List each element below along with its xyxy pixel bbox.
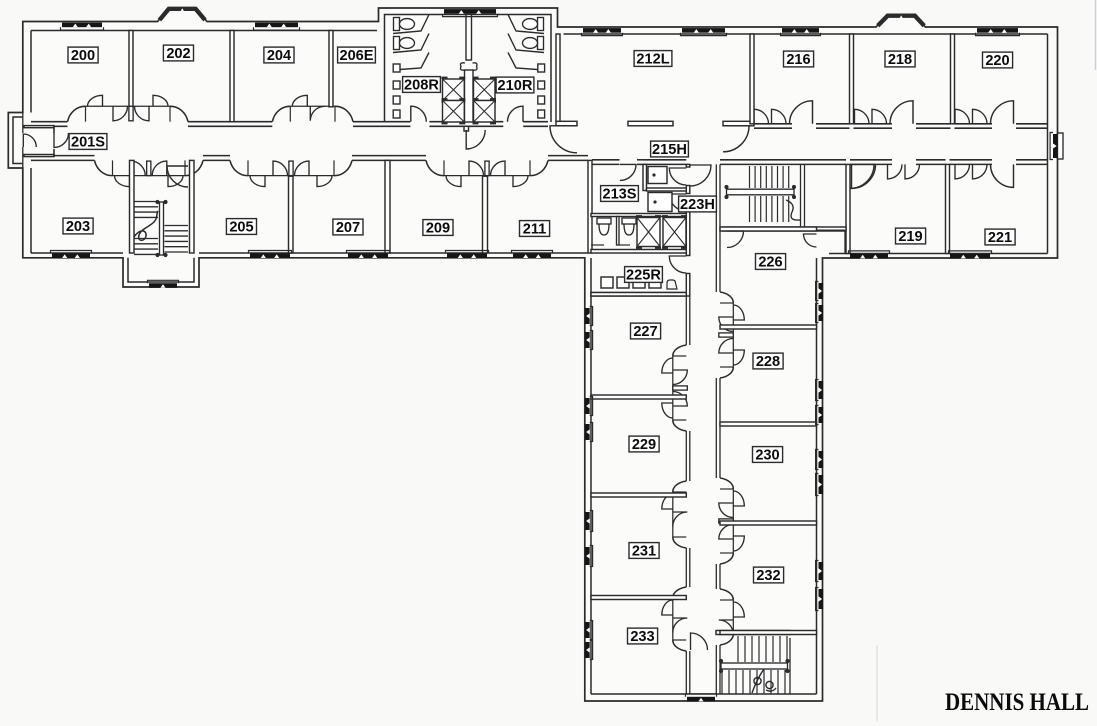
svg-text:206E: 206E [339, 48, 373, 64]
svg-text:210R: 210R [498, 78, 533, 94]
svg-text:225R: 225R [626, 268, 661, 284]
svg-text:213S: 213S [602, 187, 636, 203]
svg-text:230: 230 [755, 448, 779, 464]
svg-text:233: 233 [630, 629, 654, 645]
svg-text:216: 216 [786, 52, 810, 68]
svg-text:203: 203 [66, 219, 90, 235]
svg-text:212L: 212L [636, 52, 669, 68]
svg-text:221: 221 [988, 230, 1012, 246]
svg-text:232: 232 [756, 568, 780, 584]
svg-text:215H: 215H [652, 142, 687, 158]
svg-text:227: 227 [633, 324, 657, 340]
svg-text:229: 229 [632, 437, 656, 453]
svg-text:204: 204 [267, 48, 292, 64]
svg-text:228: 228 [756, 354, 780, 370]
svg-text:218: 218 [888, 52, 912, 68]
svg-text:231: 231 [632, 544, 656, 560]
svg-text:219: 219 [898, 229, 922, 245]
svg-text:211: 211 [523, 222, 547, 238]
svg-text:DENNIS HALL: DENNIS HALL [945, 689, 1089, 716]
svg-text:209: 209 [426, 221, 450, 237]
svg-text:226: 226 [758, 255, 782, 271]
svg-text:202: 202 [166, 46, 190, 62]
svg-text:201S: 201S [71, 135, 105, 151]
svg-text:207: 207 [336, 220, 360, 236]
svg-text:223H: 223H [680, 197, 715, 213]
svg-text:205: 205 [229, 220, 253, 236]
svg-text:220: 220 [985, 53, 1009, 69]
svg-text:200: 200 [71, 48, 95, 64]
svg-text:208R: 208R [404, 78, 439, 94]
